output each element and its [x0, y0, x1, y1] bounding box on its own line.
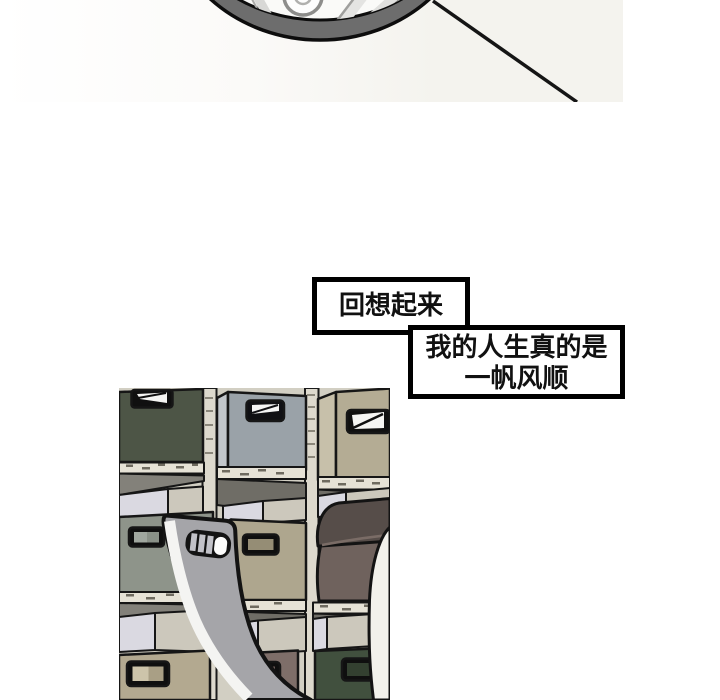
speech-text-1: 回想起来 — [339, 290, 443, 320]
shelf-band — [217, 467, 306, 479]
speech-text-2-line1: 我的人生真的是 — [413, 332, 620, 363]
box-blue-gray-side — [217, 392, 228, 470]
frame-line — [433, 1, 577, 102]
storage-shelf-illustration — [119, 388, 390, 700]
comic-page: 回想起来 我的人生真的是 一帆风顺 — [0, 0, 720, 700]
speech-bubble-2: 我的人生真的是 一帆风顺 — [408, 325, 625, 399]
box-top-lavender — [119, 613, 155, 652]
speech-text-2-line2: 一帆风顺 — [413, 363, 620, 394]
shelf-panel — [119, 388, 390, 700]
box-top-greige — [258, 617, 306, 654]
bicycle-wheel-illustration — [0, 0, 623, 102]
box-top-lavender — [313, 617, 327, 651]
box-khaki-side — [318, 392, 336, 480]
top-panel — [0, 0, 623, 102]
box-top-greige — [263, 498, 306, 523]
